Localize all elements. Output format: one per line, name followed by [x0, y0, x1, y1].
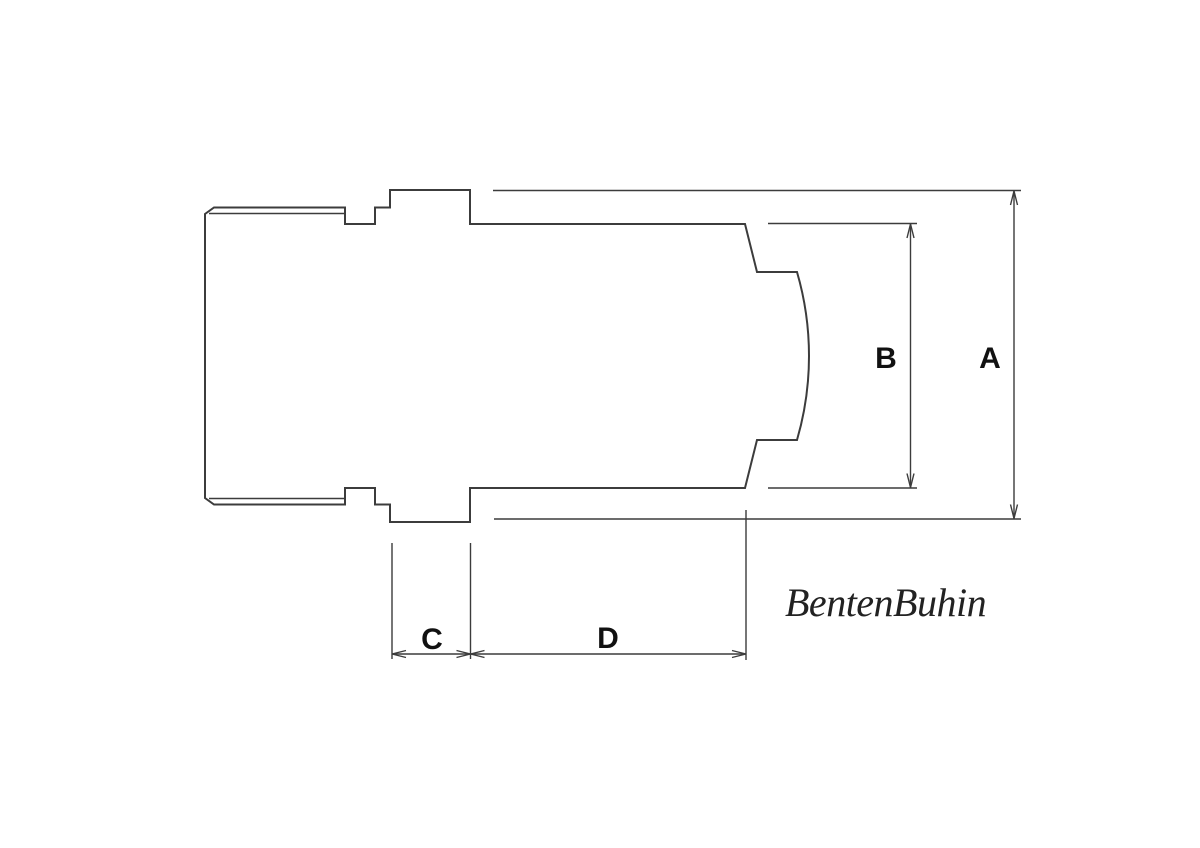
- part-outer-profile: [205, 190, 809, 522]
- part-outline-group: [205, 190, 809, 522]
- brand-signature: BentenBuhin: [785, 580, 986, 625]
- dim-label-d: D: [597, 622, 619, 655]
- dim-label-b: B: [875, 342, 897, 375]
- dim-label-a: A: [979, 342, 1001, 375]
- fitting-profile-drawing: A B C D BentenBuhin: [0, 0, 1200, 848]
- dim-label-c: C: [421, 623, 443, 656]
- technical-drawing-canvas: A B C D BentenBuhin: [0, 0, 1200, 848]
